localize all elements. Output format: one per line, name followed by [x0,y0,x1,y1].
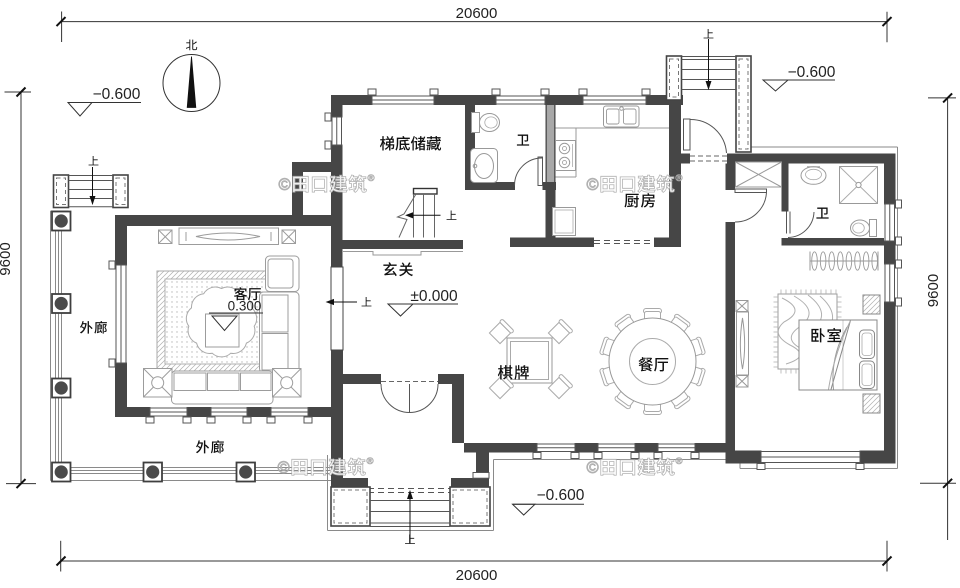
svg-text:®: ® [367,456,374,467]
svg-text:®: ® [368,173,375,184]
svg-text:−0.600: −0.600 [537,487,585,504]
svg-text:20600: 20600 [456,567,498,584]
svg-text:−0.600: −0.600 [788,64,836,81]
svg-text:20600: 20600 [456,5,498,22]
svg-text:±0.000: ±0.000 [410,288,458,305]
svg-text:©: © [587,459,599,477]
svg-text:®: ® [676,456,683,467]
svg-text:®: ® [676,173,683,184]
svg-text:9600: 9600 [0,242,14,275]
svg-text:©: © [278,459,290,477]
svg-text:9600: 9600 [925,274,942,307]
svg-text:©: © [279,176,291,194]
svg-text:0.300: 0.300 [228,299,262,314]
svg-text:−0.600: −0.600 [93,86,141,103]
svg-text:©: © [587,176,599,194]
